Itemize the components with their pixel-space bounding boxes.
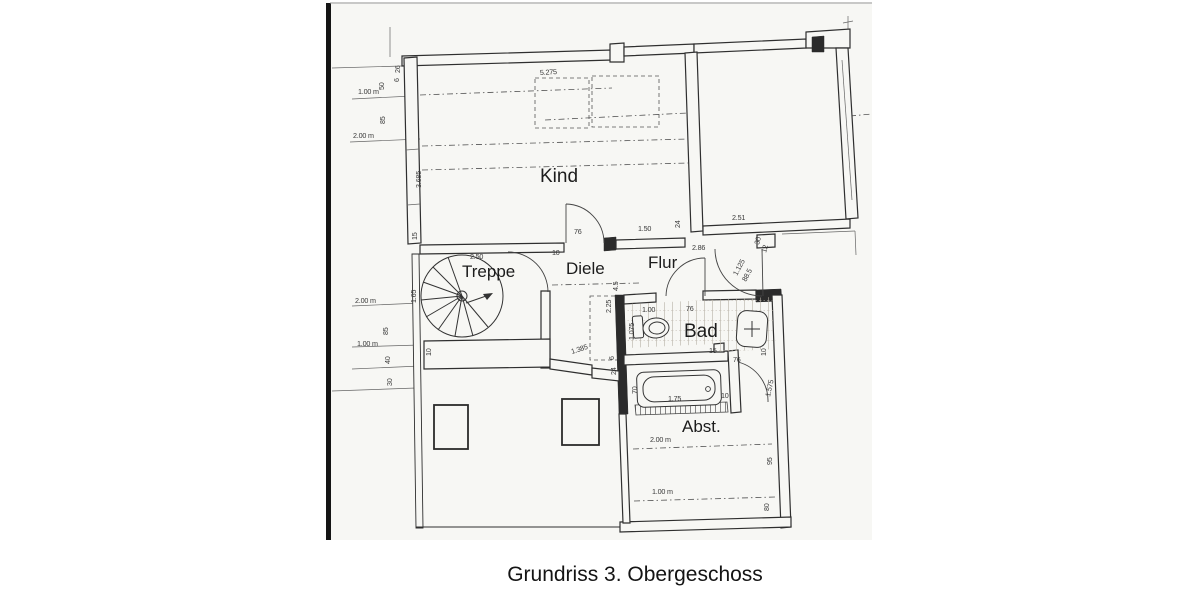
dimension-label: 80: [762, 503, 771, 511]
dimension-label: 24: [673, 220, 682, 228]
dimension-label: 2.25: [604, 300, 613, 313]
dimension-label: 40: [383, 356, 392, 364]
dimension-label: 85: [381, 327, 390, 335]
dimension-label: 2.00 m: [650, 435, 671, 444]
stair-landing: [424, 339, 550, 369]
dimension-label: 76: [686, 304, 694, 313]
dimension-label: 15: [709, 346, 717, 355]
dimension-label: 2.00 m: [353, 131, 374, 140]
dimension-label: 1.65: [409, 290, 418, 303]
room-label: Diele: [566, 259, 605, 278]
sink: [736, 310, 768, 348]
dimension-label: 76: [574, 227, 582, 236]
dimension-label: 10: [721, 391, 729, 400]
room-label: Kind: [540, 166, 578, 187]
room-label: Bad: [684, 321, 718, 342]
dimension-label: 4.5: [611, 281, 620, 291]
room-label: Abst.: [682, 417, 721, 436]
room-label: Flur: [648, 253, 678, 272]
dimension-label: 85: [378, 116, 387, 124]
dimension-label: 6: [607, 356, 616, 360]
scanned-floor-plan-page: KindTreppeDieleFlurBadAbst. 5.2751.00 m5…: [0, 0, 1200, 600]
dimension-label: 2.50: [470, 252, 483, 261]
dimension-label: 15: [410, 232, 419, 240]
dimension-label: 1.75: [668, 394, 681, 403]
dimension-label: 10: [552, 248, 560, 257]
floor-plan-drawing: KindTreppeDieleFlurBadAbst. 5.2751.00 m5…: [0, 0, 1200, 600]
dimension-label: 76: [733, 355, 741, 364]
dimension-label: 2.00 m: [355, 296, 376, 305]
dimension-label: 26: [393, 65, 402, 73]
dimension-label: 1.00 m: [652, 487, 673, 496]
dimension-label: 30: [385, 378, 394, 386]
dimension-label: 2.86: [692, 243, 705, 252]
dimension-label: 1.00: [642, 305, 655, 314]
dimension-label: 2.51: [732, 213, 745, 222]
dimension-label: 10: [424, 348, 433, 356]
dimension-label: 3.685: [414, 171, 423, 188]
dimension-label: 1.50: [638, 224, 651, 233]
dimension-label: 70: [630, 386, 639, 394]
room-label: Treppe: [462, 262, 515, 281]
dimension-label: 6: [392, 78, 401, 82]
dimension-label: 1.075: [627, 323, 636, 340]
plan-caption: Grundriss 3. Obergeschoss: [70, 563, 1200, 587]
dimension-label: 5.275: [540, 67, 558, 77]
dimension-label: 50: [377, 82, 386, 90]
dimension-label: 10: [759, 348, 768, 356]
dimension-label: 1.00 m: [357, 339, 378, 348]
dimension-label: 1.00 m: [358, 87, 379, 96]
scan-left-edge-line: [326, 3, 331, 540]
dimension-label: 24: [609, 367, 618, 375]
dimension-label: 95: [765, 457, 774, 465]
